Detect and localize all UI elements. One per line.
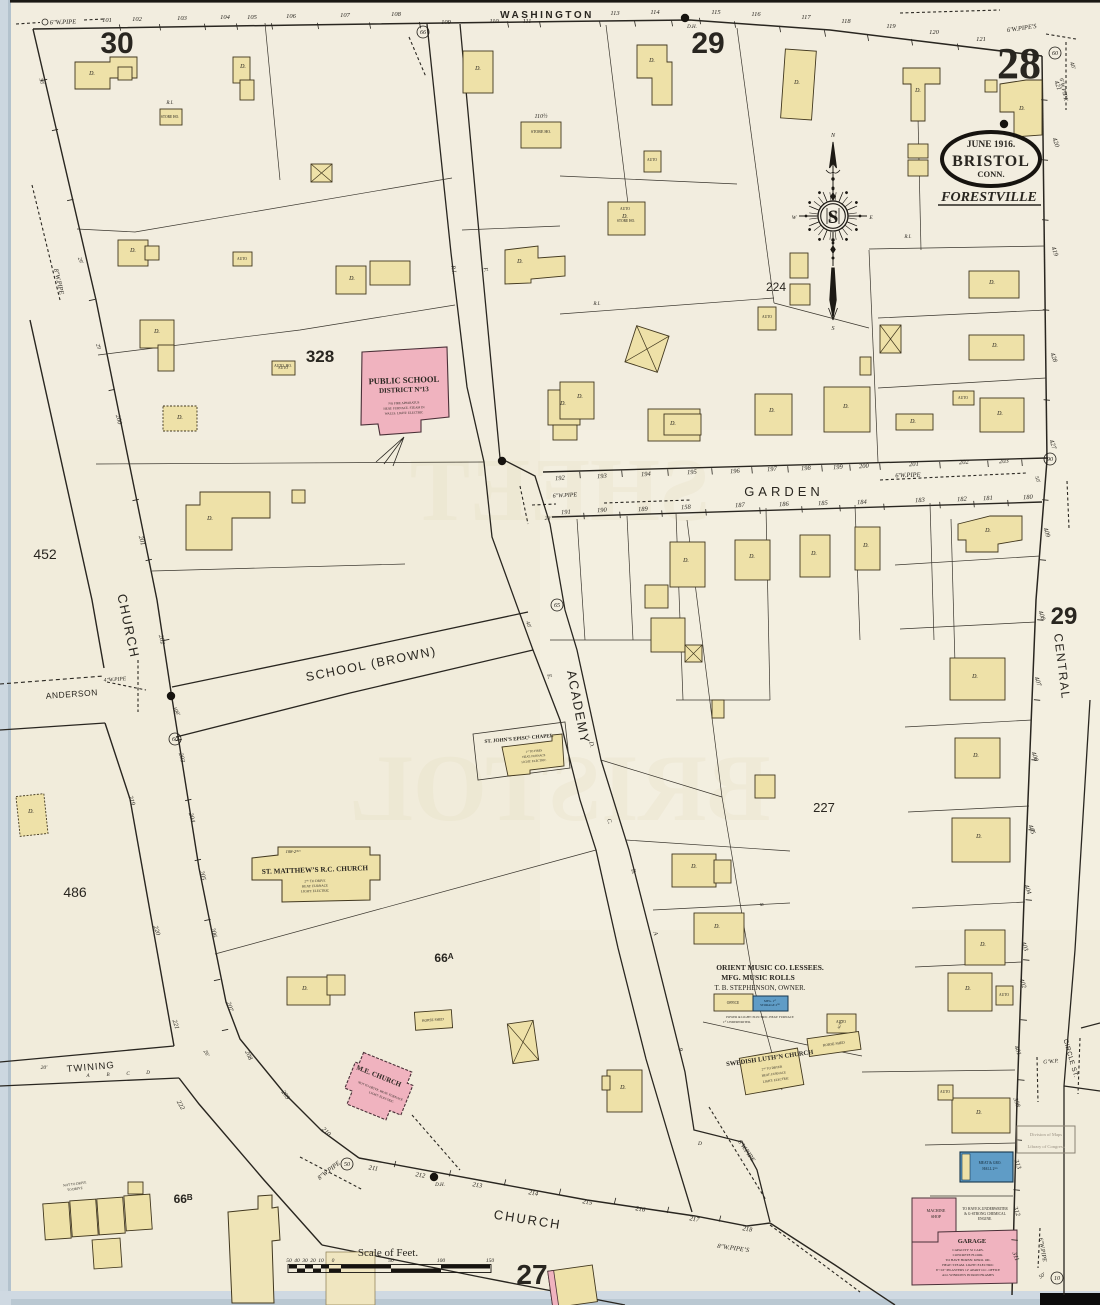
- svg-text:AUTO: AUTO: [620, 207, 630, 211]
- svg-text:SHEET: SHEET: [410, 441, 710, 540]
- svg-text:116: 116: [751, 11, 761, 18]
- svg-text:D.: D.: [972, 753, 979, 759]
- svg-text:6"W.PIPE: 6"W.PIPE: [50, 19, 77, 27]
- svg-text:D.: D.: [909, 419, 916, 425]
- svg-text:196: 196: [730, 468, 741, 476]
- svg-text:10: 10: [318, 1258, 324, 1264]
- svg-text:40: 40: [294, 1257, 300, 1264]
- svg-text:D.H.: D.H.: [434, 1183, 445, 1188]
- svg-text:R.I.: R.I.: [903, 235, 911, 240]
- svg-text:107: 107: [340, 12, 351, 19]
- svg-text:& G-STRONG CHEMICAL: & G-STRONG CHEMICAL: [964, 1212, 1006, 1216]
- svg-text:D.: D.: [842, 404, 849, 410]
- svg-text:R.I.: R.I.: [592, 302, 600, 307]
- svg-text:T. B. STEPHENSON, OWNER.: T. B. STEPHENSON, OWNER.: [714, 984, 805, 992]
- svg-text:D.: D.: [914, 88, 921, 94]
- svg-text:D.: D.: [301, 986, 308, 992]
- svg-text:AUTO: AUTO: [836, 1020, 846, 1024]
- svg-text:66ᴬ: 66ᴬ: [434, 951, 453, 965]
- svg-text:AUTO: AUTO: [999, 993, 1009, 997]
- svg-text:D.: D.: [559, 401, 566, 407]
- svg-text:0: 0: [332, 1258, 335, 1264]
- svg-text:108-2ᴺᴰ: 108-2ᴺᴰ: [286, 849, 302, 854]
- svg-text:184: 184: [857, 499, 868, 507]
- svg-text:113: 113: [610, 10, 620, 17]
- svg-text:TO HAVE K.UNDERWRITER: TO HAVE K.UNDERWRITER: [962, 1207, 1008, 1211]
- svg-text:D.: D.: [239, 64, 246, 70]
- svg-text:199: 199: [833, 464, 844, 472]
- svg-text:197: 197: [767, 466, 778, 474]
- svg-text:180: 180: [1023, 494, 1034, 502]
- svg-text:106: 106: [286, 13, 297, 20]
- svg-text:224: 224: [766, 280, 786, 294]
- svg-text:121: 121: [976, 36, 986, 43]
- svg-text:D.: D.: [576, 394, 583, 400]
- svg-text:D.: D.: [206, 516, 213, 522]
- svg-text:CONN.: CONN.: [977, 169, 1004, 179]
- svg-text:452: 452: [33, 546, 57, 562]
- svg-text:60: 60: [1052, 51, 1058, 57]
- svg-text:50: 50: [388, 1258, 394, 1264]
- svg-text:30: 30: [301, 1258, 308, 1264]
- svg-text:117: 117: [801, 14, 811, 21]
- svg-text:MFG. MUSIC ROLLS: MFG. MUSIC ROLLS: [721, 973, 795, 982]
- svg-text:114: 114: [650, 9, 660, 16]
- svg-text:110: 110: [489, 18, 499, 25]
- svg-text:D.: D.: [690, 864, 697, 870]
- svg-text:191: 191: [561, 509, 571, 517]
- svg-text:ENGINE.: ENGINE.: [978, 1217, 992, 1221]
- svg-text:AUTO: AUTO: [940, 1090, 950, 1094]
- svg-text:STORE HO.: STORE HO.: [161, 115, 179, 119]
- svg-text:105: 105: [247, 14, 258, 21]
- svg-text:101: 101: [102, 17, 112, 24]
- svg-text:D.: D.: [768, 408, 775, 414]
- svg-text:29: 29: [1051, 603, 1078, 630]
- svg-text:HEAT: STEAM. LIGHT: ELECTRIC: HEAT: STEAM. LIGHT: ELECTRIC: [942, 1263, 994, 1267]
- svg-text:GARDEN: GARDEN: [744, 484, 824, 499]
- svg-text:D.: D.: [1018, 106, 1025, 112]
- svg-text:D.: D.: [748, 554, 755, 560]
- svg-text:D.H.: D.H.: [686, 25, 697, 30]
- svg-text:120: 120: [929, 29, 940, 36]
- svg-text:193: 193: [597, 473, 608, 481]
- svg-text:S: S: [832, 326, 835, 332]
- svg-text:115: 115: [711, 9, 721, 16]
- svg-text:D.: D.: [129, 248, 136, 254]
- svg-text:118: 118: [841, 18, 851, 25]
- svg-text:D.: D.: [810, 551, 817, 557]
- svg-text:102: 102: [132, 16, 143, 23]
- svg-text:OFFICE: OFFICE: [727, 1001, 740, 1005]
- svg-text:Division of Maps: Division of Maps: [1030, 1132, 1062, 1137]
- svg-text:FORESTVILLE: FORESTVILLE: [940, 190, 1037, 205]
- svg-text:195: 195: [687, 469, 698, 477]
- svg-text:STORE HO.: STORE HO.: [531, 129, 551, 134]
- svg-text:187: 187: [735, 502, 746, 510]
- svg-text:WASHINGTON: WASHINGTON: [500, 10, 594, 21]
- svg-text:D.: D.: [348, 276, 355, 282]
- svg-text:190: 190: [597, 507, 608, 515]
- svg-text:SHOP: SHOP: [931, 1214, 942, 1219]
- svg-text:D.: D.: [988, 280, 995, 286]
- svg-text:MACHINE: MACHINE: [927, 1208, 946, 1213]
- svg-text:AUTO. HO.: AUTO. HO.: [274, 364, 292, 368]
- svg-text:HALL 2ᴺᴰ: HALL 2ᴺᴰ: [982, 1167, 998, 1171]
- svg-text:328: 328: [306, 347, 334, 366]
- svg-text:R.I.: R.I.: [165, 101, 173, 106]
- svg-text:JUNE 1916.: JUNE 1916.: [967, 140, 1016, 150]
- svg-text:109: 109: [441, 19, 452, 26]
- svg-text:AUTO: AUTO: [958, 396, 968, 400]
- svg-text:D.: D.: [862, 543, 869, 549]
- svg-text:486: 486: [63, 884, 87, 900]
- svg-text:D.: D.: [176, 415, 183, 421]
- svg-text:Library of Congress: Library of Congress: [1028, 1144, 1065, 1149]
- svg-text:227: 227: [813, 800, 835, 815]
- svg-text:189: 189: [638, 506, 649, 514]
- svg-text:50: 50: [344, 1162, 350, 1168]
- svg-text:CONCRETE FLOOR.: CONCRETE FLOOR.: [953, 1253, 984, 1257]
- svg-text:29: 29: [691, 27, 724, 60]
- svg-text:D: D: [145, 1071, 150, 1076]
- svg-text:TO HAVE HORSN: KERO. OIL: TO HAVE HORSN: KERO. OIL: [946, 1258, 991, 1262]
- svg-text:B: B: [106, 1073, 109, 1078]
- svg-text:6"×16" PILASTERS 12′ APART O.C: 6"×16" PILASTERS 12′ APART O.C. OFFICE: [936, 1268, 1000, 1272]
- svg-text:D.: D.: [991, 343, 998, 349]
- svg-text:CAPACITY 32 CARS.: CAPACITY 32 CARS.: [952, 1248, 983, 1252]
- svg-text:D.: D.: [682, 558, 689, 564]
- svg-text:N: N: [828, 209, 838, 224]
- svg-text:200: 200: [859, 463, 870, 471]
- svg-text:111: 111: [523, 18, 532, 25]
- svg-text:AUTO: AUTO: [237, 257, 247, 261]
- svg-text:182: 182: [957, 496, 968, 504]
- svg-text:20': 20': [41, 1065, 49, 1071]
- svg-text:D.: D.: [979, 942, 986, 948]
- svg-text:AUTO: AUTO: [647, 158, 657, 162]
- svg-text:AUTO: AUTO: [762, 315, 772, 319]
- svg-text:ALL WINDOWS IN IRON FRAMES: ALL WINDOWS IN IRON FRAMES: [942, 1273, 994, 1277]
- svg-text:D.: D.: [975, 1110, 982, 1116]
- svg-text:201: 201: [909, 461, 919, 469]
- svg-text:10: 10: [1054, 1276, 1060, 1282]
- svg-text:STORE HO.: STORE HO.: [617, 219, 635, 223]
- svg-text:D.: D.: [153, 329, 160, 335]
- svg-text:27: 27: [516, 1259, 547, 1290]
- svg-text:90: 90: [1047, 457, 1053, 463]
- svg-text:185: 185: [818, 500, 829, 508]
- svg-text:66: 66: [420, 30, 426, 36]
- svg-text:50: 50: [286, 1258, 292, 1264]
- svg-text:D.: D.: [669, 421, 676, 427]
- svg-text:100: 100: [437, 1258, 446, 1264]
- svg-text:202: 202: [959, 459, 970, 467]
- svg-text:66ᴮ: 66ᴮ: [174, 1192, 193, 1206]
- svg-text:F.: F.: [481, 266, 488, 272]
- svg-text:D.: D.: [619, 1085, 626, 1091]
- svg-text:194: 194: [641, 471, 652, 479]
- svg-text:6'W.PIPE: 6'W.PIPE: [895, 472, 920, 480]
- svg-text:150: 150: [486, 1258, 495, 1264]
- svg-text:POWER & LIGHT: ELECTRIC. HEAT:: POWER & LIGHT: ELECTRIC. HEAT: FURNACE: [726, 1015, 794, 1019]
- svg-text:108: 108: [391, 11, 402, 18]
- svg-text:D.: D.: [474, 66, 481, 72]
- svg-text:BRISTOL: BRISTOL: [952, 153, 1030, 170]
- svg-text:119: 119: [886, 23, 896, 30]
- svg-text:D.: D.: [88, 71, 95, 77]
- svg-text:183: 183: [915, 497, 926, 505]
- svg-text:60: 60: [172, 737, 178, 743]
- svg-text:2ᴺᴰ TO DRIVE: 2ᴺᴰ TO DRIVE: [304, 879, 325, 884]
- svg-text:STORAGE 2ᴺᴰ: STORAGE 2ᴺᴰ: [760, 1003, 781, 1007]
- svg-text:186: 186: [779, 501, 790, 509]
- svg-text:D.: D.: [996, 411, 1003, 417]
- svg-text:W: W: [792, 215, 797, 221]
- svg-text:30: 30: [100, 27, 133, 60]
- svg-text:D.: D.: [713, 924, 720, 930]
- svg-text:D.: D.: [516, 259, 523, 265]
- svg-text:D.: D.: [648, 58, 655, 64]
- svg-text:D.: D.: [975, 834, 982, 840]
- svg-text:D.: D.: [27, 809, 34, 815]
- svg-text:158: 158: [681, 504, 692, 512]
- svg-text:MEAT & GRO.: MEAT & GRO.: [979, 1161, 1002, 1165]
- svg-text:110½: 110½: [534, 113, 548, 120]
- svg-text:GARAGE: GARAGE: [958, 1238, 987, 1245]
- svg-text:203: 203: [999, 458, 1010, 466]
- svg-text:181: 181: [983, 495, 993, 503]
- svg-text:1ˢᵀ UNDERWRITER.: 1ˢᵀ UNDERWRITER.: [723, 1020, 751, 1024]
- svg-text:D.: D.: [984, 528, 991, 534]
- svg-text:D.: D.: [793, 80, 800, 86]
- svg-text:198: 198: [801, 465, 812, 473]
- svg-text:D.: D.: [964, 986, 971, 992]
- svg-text:192: 192: [555, 475, 566, 483]
- svg-text:D.: D.: [971, 674, 978, 680]
- svg-text:ORIENT MUSIC CO. LESSEES.: ORIENT MUSIC CO. LESSEES.: [716, 963, 824, 972]
- svg-text:65: 65: [554, 603, 560, 609]
- svg-text:E: E: [868, 215, 873, 221]
- svg-text:D: D: [697, 1141, 702, 1147]
- svg-text:20: 20: [310, 1258, 316, 1264]
- svg-text:104: 104: [220, 14, 231, 21]
- svg-text:20': 20': [545, 516, 553, 522]
- svg-text:103: 103: [177, 15, 188, 22]
- svg-text:28: 28: [997, 39, 1041, 88]
